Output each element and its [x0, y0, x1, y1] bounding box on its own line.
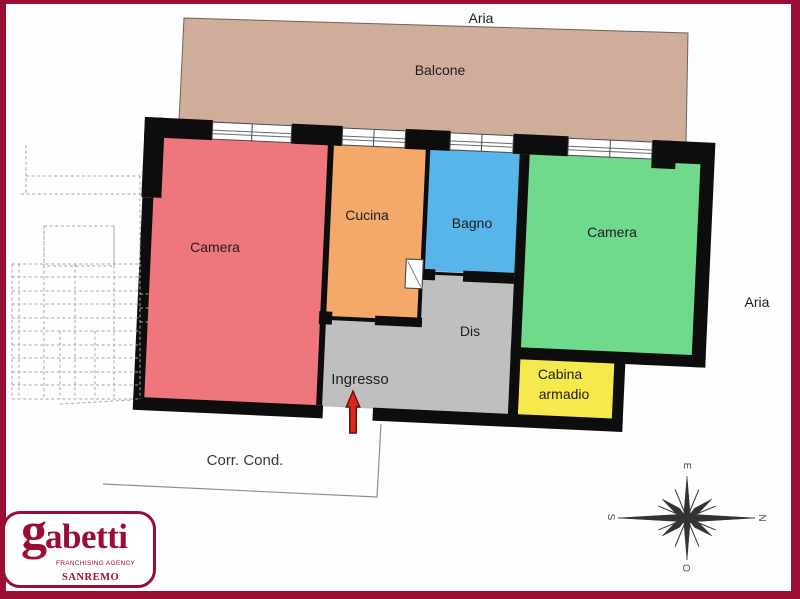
svg-text:Aria: Aria — [745, 294, 770, 310]
svg-text:Camera: Camera — [190, 239, 240, 255]
svg-text:E: E — [681, 463, 692, 470]
svg-text:Balcone: Balcone — [415, 62, 466, 78]
svg-text:Corr. Cond.: Corr. Cond. — [207, 452, 284, 469]
svg-text:Cucina: Cucina — [345, 207, 389, 223]
svg-text:S: S — [605, 514, 616, 521]
svg-text:Aria: Aria — [469, 10, 494, 26]
svg-text:O: O — [680, 564, 691, 572]
svg-text:armadio: armadio — [539, 386, 590, 402]
svg-text:Camera: Camera — [587, 224, 637, 240]
svg-text:Cabina: Cabina — [538, 366, 583, 382]
svg-text:Ingresso: Ingresso — [331, 371, 389, 388]
svg-text:Dis: Dis — [460, 323, 480, 339]
svg-text:N: N — [756, 514, 767, 521]
svg-text:Bagno: Bagno — [452, 215, 493, 231]
